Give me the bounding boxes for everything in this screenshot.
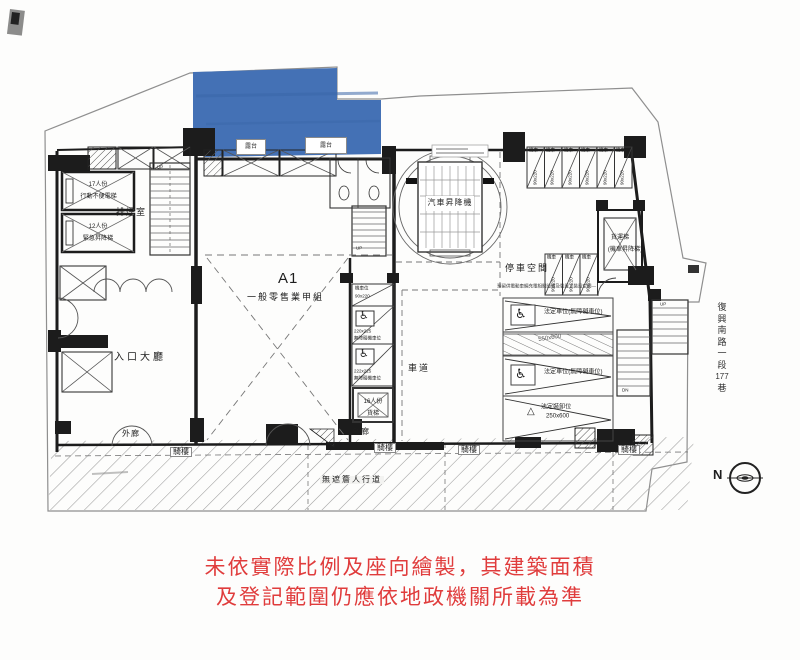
smoke-room-label: 排煙室 bbox=[116, 208, 146, 217]
driveway-label: 車道 bbox=[408, 364, 430, 373]
street-number: 177 bbox=[714, 371, 730, 383]
north-label: N bbox=[713, 468, 722, 482]
moto-stall-tag: 機車 bbox=[565, 255, 574, 260]
disclaimer-line-2: 及登記範圍仍應依地政機關所載為準 bbox=[0, 583, 800, 613]
terrace-chip-1: 露台 bbox=[236, 139, 266, 155]
street-char: 一 bbox=[714, 348, 730, 360]
moto-stall-dim: 90x220 bbox=[533, 170, 538, 185]
arcade-label: 騎樓 bbox=[374, 443, 396, 453]
mid-stall1-dim: 90x220 bbox=[355, 294, 370, 299]
elevator-1-capacity: 17人份 bbox=[80, 182, 115, 188]
moto-stall-tag: 機車 bbox=[582, 255, 591, 260]
terrace-chip-2: 露台 bbox=[305, 137, 347, 154]
warning-triangle-icon: △ bbox=[527, 407, 535, 418]
disclaimer-text: 未依實際比例及座向繪製，其建築面積 及登記範圍仍應依地政機關所載為準 bbox=[0, 553, 800, 613]
ev-reserve-note: 預留供電動車輛充電相關設備及裝置之裝設空間— bbox=[497, 284, 596, 289]
stair-down-label: DN bbox=[622, 388, 629, 393]
mid-stall1-tag: 機車位 bbox=[355, 286, 369, 291]
elevator-1-type: 行動不便電梯 bbox=[80, 193, 115, 199]
moto-stall-tag: 機車 bbox=[564, 148, 573, 153]
elevator-1-label: 17人份 行動不便電梯 bbox=[66, 179, 130, 202]
arcade-label: 騎樓 bbox=[458, 445, 480, 455]
retail-unit-id: A1 bbox=[278, 271, 298, 287]
moto-stall-dim: 90x220 bbox=[620, 170, 625, 185]
service-elevator-type: 貨梯 bbox=[362, 410, 384, 416]
moto-stall-tag: 機車 bbox=[529, 148, 538, 153]
moto-stall-tag: 機車 bbox=[599, 148, 608, 153]
terrace-label: 露台 bbox=[245, 144, 257, 150]
accessible-car-stall-label: 法定車位(無障礙車位) bbox=[544, 309, 602, 315]
restroom bbox=[330, 158, 390, 208]
loading-stall-dim: 250x600 bbox=[546, 413, 569, 419]
elevator-2-type: 緊急昇降梯 bbox=[80, 235, 115, 241]
moto-stall-tag: 機車 bbox=[581, 148, 590, 153]
mid-stall2-dim: 220x225 bbox=[354, 329, 371, 334]
sidewalk-label: 無遮簷人行道 bbox=[320, 476, 384, 484]
street-name: 復 興 南 路 一 段 177 巷 bbox=[714, 302, 730, 394]
corridor-label-right: 外廊 bbox=[352, 428, 370, 436]
scan-artifact bbox=[7, 9, 25, 36]
street-char: 南 bbox=[714, 325, 730, 337]
disclaimer-line-1: 未依實際比例及座向繪製，其建築面積 bbox=[0, 553, 800, 583]
retail-use-label: 一般零售業甲組 bbox=[247, 293, 324, 302]
floorplan-page: 露台 露台 排煙室 17人份 行動不便電梯 12人份 緊急昇降梯 入口大廳 A1… bbox=[0, 0, 800, 660]
street-char: 段 bbox=[714, 360, 730, 372]
doors bbox=[58, 279, 310, 446]
stair-up-label: UP bbox=[660, 302, 666, 307]
accessible-car-stall-label: 法定車位(無障礙車位) bbox=[544, 369, 602, 375]
moto-stall-dim: 90x220 bbox=[603, 170, 608, 185]
loading-stall-label: 法定裝卸位 bbox=[541, 404, 571, 410]
moto-stall-tag: 機車 bbox=[547, 255, 556, 260]
arcade-label: 騎樓 bbox=[618, 445, 640, 455]
mid-stall3-dim: 222x225 bbox=[354, 369, 371, 374]
arcade-label: 騎樓 bbox=[170, 447, 192, 457]
moto-stall-dim: 90x220 bbox=[550, 170, 555, 185]
moto-stall-tag: 機車 bbox=[616, 148, 625, 153]
wheelchair-icon: ♿ bbox=[359, 311, 369, 323]
freight-elevator-name: 貨運梯 bbox=[608, 235, 632, 241]
accessible-note: 無障礙機車位 bbox=[354, 376, 381, 381]
wheelchair-icon: ♿ bbox=[515, 307, 527, 321]
corridor-label-left: 外廊 bbox=[122, 430, 140, 438]
car-lift-label: 汽車昇降機 bbox=[426, 199, 474, 207]
north-compass bbox=[727, 463, 763, 493]
street-char: 巷 bbox=[714, 383, 730, 395]
moto-stall-dim: 90x220 bbox=[585, 170, 590, 185]
parking-space-label: 停車空間 bbox=[505, 264, 549, 273]
moto-stall-dim: 90x220 bbox=[568, 170, 573, 185]
stair-up-label: UP bbox=[157, 165, 163, 170]
accessible-note: 無障礙機車位 bbox=[354, 336, 381, 341]
street-char: 復 bbox=[714, 302, 730, 314]
highlighted-unit-region bbox=[193, 68, 381, 157]
street-char: 興 bbox=[714, 314, 730, 326]
moto-stalls-row1 bbox=[527, 147, 632, 188]
wheelchair-icon: ♿ bbox=[359, 349, 369, 361]
street-char: 路 bbox=[714, 337, 730, 349]
moto-stall-tag: 機車 bbox=[546, 148, 555, 153]
elevator-2-capacity: 12人份 bbox=[80, 224, 115, 230]
terrace-label: 露台 bbox=[320, 142, 332, 148]
freight-elevator-label: 貨運梯 (機車昇降梯) bbox=[598, 232, 642, 255]
service-elevator-capacity: 16人份 bbox=[362, 399, 384, 405]
wheelchair-icon: ♿ bbox=[515, 367, 527, 381]
service-elevator-label: 16人份 貨梯 bbox=[353, 396, 393, 419]
elevator-2-label: 12人份 緊急昇降梯 bbox=[66, 221, 130, 244]
freight-elevator-type: (機車昇降梯) bbox=[608, 246, 632, 252]
stair-up-label: UP bbox=[356, 246, 362, 251]
lobby-label: 入口大廳 bbox=[114, 353, 166, 364]
